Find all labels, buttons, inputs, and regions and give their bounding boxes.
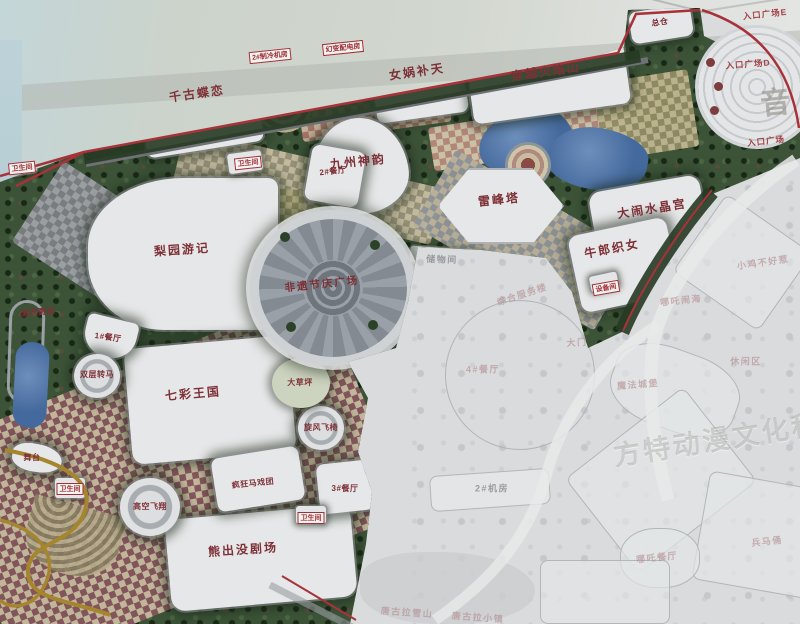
phase2-label: 休闲区: [730, 355, 762, 368]
restroom-tag: 卫生间: [298, 512, 325, 524]
partial-watermark: 音: [758, 77, 792, 124]
ride-label: 舞台: [24, 454, 41, 462]
restroom-tag: 卫生间: [57, 483, 84, 495]
phase2-label: 唐古拉小镇: [451, 609, 504, 624]
ride-label: 旋风飞椅: [304, 424, 338, 432]
building-qicaiwangguo: [123, 335, 296, 465]
building-xiongchumo-theater: [164, 504, 357, 612]
phase2-label: 大门: [566, 335, 588, 349]
planter: [286, 322, 296, 332]
restaurant-label: 3#餐厅: [332, 485, 359, 493]
planter: [368, 320, 378, 330]
planter: [370, 240, 380, 250]
flume-pool: [12, 341, 50, 429]
tree-dot: [706, 58, 715, 67]
phase2-label: 4#餐厅: [466, 363, 500, 376]
faded-building-outline: [540, 560, 670, 624]
planter: [280, 232, 290, 242]
park-map-photo: 方特动漫文化科技 音 千古蝶恋 女娲补天 穿越火焰山 九州神韵 梨园游记 雷峰塔…: [0, 0, 800, 624]
faded-building-outline: [691, 470, 800, 599]
tree-dot: [710, 106, 719, 115]
phase2-label: 2#机房: [475, 482, 509, 495]
storage-label: 储物间: [426, 252, 458, 266]
phase2-label: 唐古拉雪山: [380, 604, 433, 621]
ride-label: 双层转马: [80, 371, 114, 379]
lawn-label: 大草坪: [287, 379, 313, 387]
tree-dot: [714, 82, 723, 91]
ride-label: 高空飞翔: [133, 503, 167, 511]
